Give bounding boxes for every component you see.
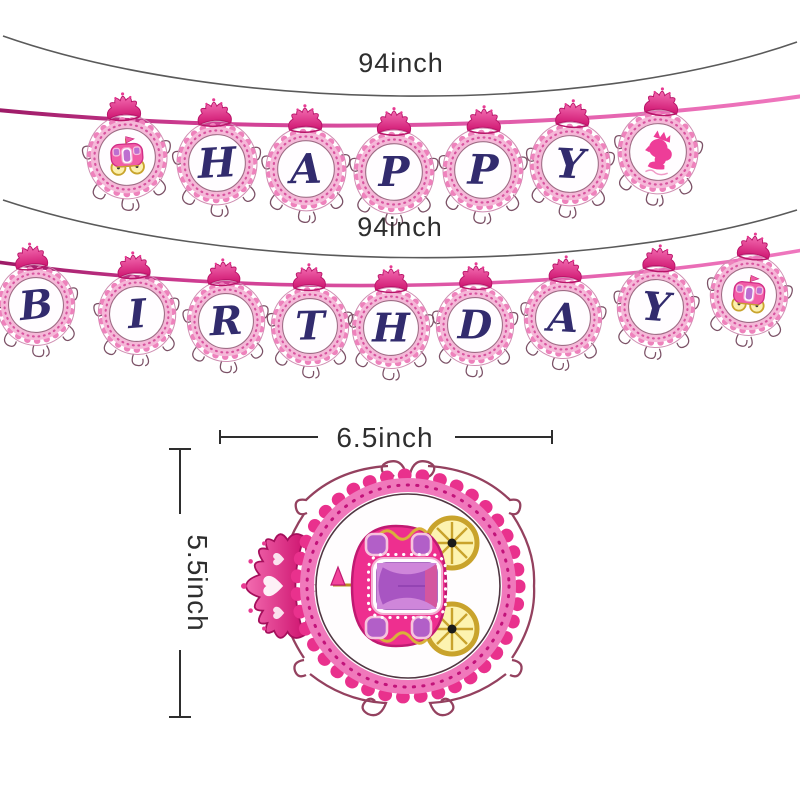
- product-image: 94inch H A P P Y: [0, 0, 800, 800]
- happy-banner: H A P P Y: [0, 84, 800, 226]
- banner-diagram-canvas: 94inch H A P P Y: [0, 0, 800, 800]
- pendant-carriage: [79, 89, 175, 214]
- pendant-letter: H: [371, 306, 411, 352]
- pendant-letter: R: [207, 298, 243, 346]
- pendant-letter: D: [456, 302, 493, 349]
- pendant-letter-t: T: [266, 263, 353, 379]
- pendant-princess: [610, 84, 706, 209]
- pendant-letter: B: [16, 281, 55, 330]
- birthday-banner: B I R T H D A Y: [0, 228, 800, 380]
- pendant-letter: A: [286, 145, 323, 194]
- banner-bottom-length-label: 94inch: [357, 212, 443, 242]
- pendant-letter: T: [295, 303, 328, 350]
- pendant-letter-r: R: [180, 256, 271, 375]
- detail-width-label: 6.5inch: [336, 422, 433, 453]
- pendant-letter: H: [195, 138, 238, 188]
- pendant-letter: P: [466, 146, 500, 195]
- detail-pendant: [241, 461, 534, 715]
- crown-icon: [241, 534, 309, 638]
- pendant-letter-i: I: [90, 248, 183, 369]
- pendant-letter: A: [542, 295, 579, 343]
- detail-height-label: 5.5inch: [182, 534, 213, 631]
- pendant-letter-d: D: [432, 262, 519, 378]
- pendant-letter-a2: A: [518, 253, 609, 372]
- banner-top-length-label: 94inch: [358, 48, 444, 78]
- pendant-letter-h: H: [170, 96, 264, 219]
- pendant-letter-h2: H: [348, 265, 433, 380]
- pendant-letter-b: B: [0, 238, 84, 361]
- pendant-letter-a: A: [261, 103, 351, 223]
- pendant-carriage-2: [701, 228, 798, 351]
- pendant-letter-y2: Y: [610, 241, 703, 362]
- pendant-letter: P: [378, 148, 411, 196]
